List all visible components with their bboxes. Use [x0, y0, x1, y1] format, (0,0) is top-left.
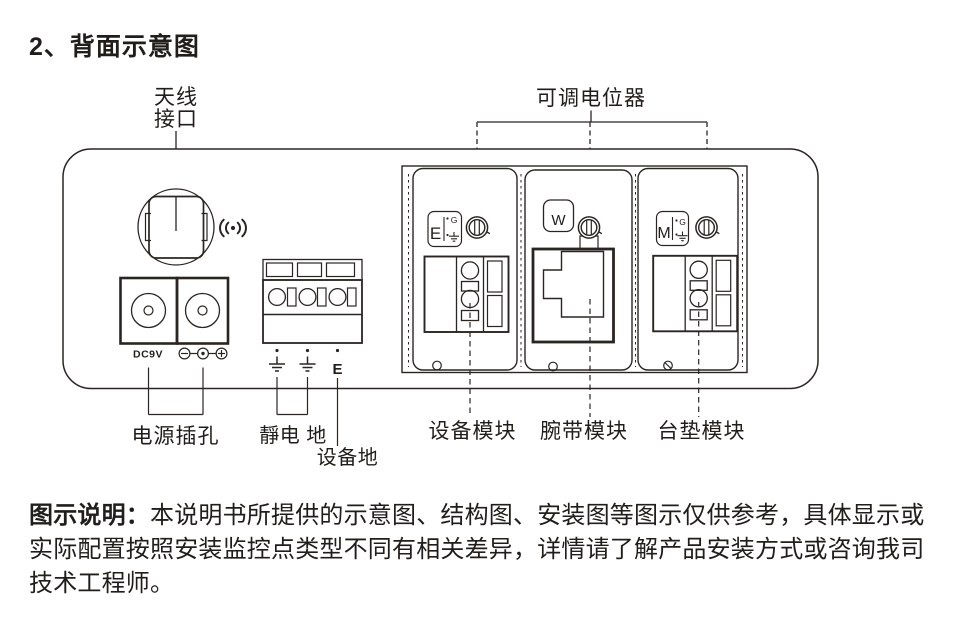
note-text-line1: 本说明书所提供的示意图、结构图、安装图等图示仅供参考，具体显示或 — [150, 502, 924, 529]
mat-module-label: 台垫模块 — [658, 420, 746, 443]
module-e-letter: E — [430, 224, 441, 243]
static-ground-label: 靜电 地 — [259, 424, 327, 447]
power-jack-label: 电源插孔 — [132, 425, 220, 448]
note-paragraph: 图示说明：本说明书所提供的示意图、结构图、安装图等图示仅供参考，具体显示或 实际… — [29, 499, 931, 601]
note-text-line2: 实际配置按照安装监控点类型不同有相关差异，详情请了解产品安装方式或咨询我司 — [29, 533, 931, 567]
dc-rating-text: DC9V — [133, 349, 163, 361]
rear-panel-outline — [63, 149, 818, 389]
earth-terminal-letter: E — [332, 361, 342, 378]
wrist-module-label: 腕带模块 — [540, 420, 628, 443]
potentiometer-label: 可调电位器 — [536, 87, 646, 110]
module-m-letter: M — [657, 225, 670, 242]
note-text-line3: 技术工程师。 — [29, 567, 931, 601]
module-w-letter: W — [551, 212, 566, 229]
device-ground-label: 设备地 — [317, 446, 379, 469]
antenna-label-line2: 接口 — [154, 108, 198, 131]
module-e-gain-letter: G — [451, 215, 458, 225]
module-m-gain-letter: G — [679, 217, 686, 227]
device-module-label: 设备模块 — [429, 420, 517, 443]
page: 2、背面示意图 — [0, 0, 954, 618]
antenna-label-line1: 天线 — [154, 86, 198, 109]
note-label: 图示说明： — [29, 502, 150, 529]
